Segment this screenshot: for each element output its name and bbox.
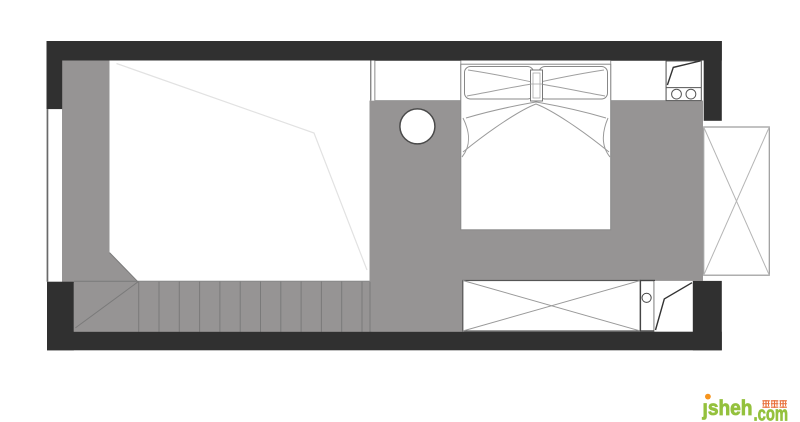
svg-text:ȷsheh: ȷsheh [702,397,753,420]
